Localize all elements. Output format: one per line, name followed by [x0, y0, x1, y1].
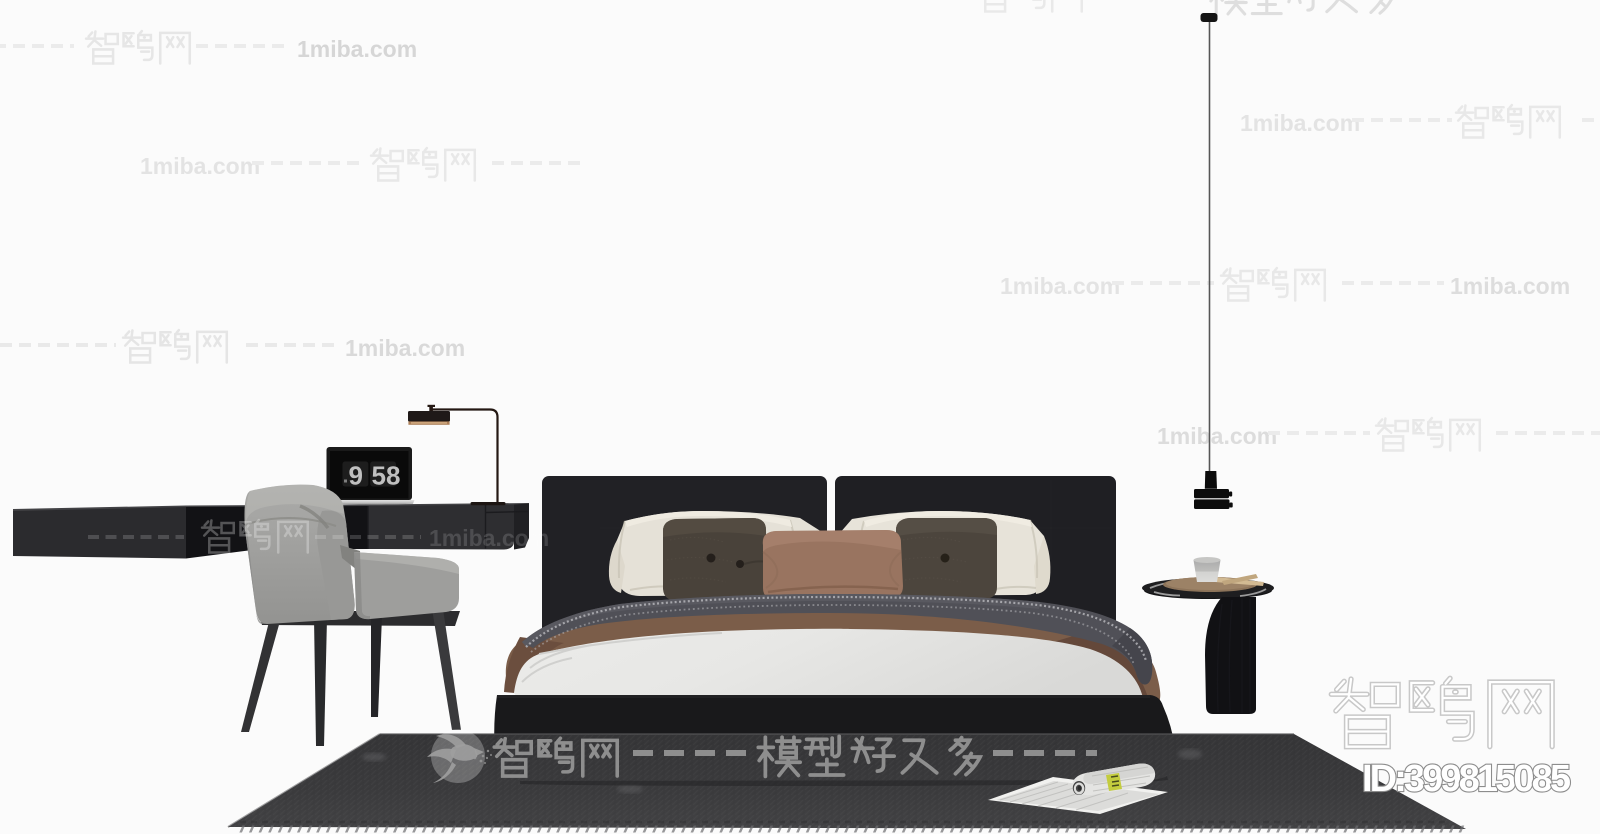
svg-text:1miba.com: 1miba.com	[1157, 423, 1277, 449]
svg-text:9: 9	[349, 461, 363, 491]
svg-text:1miba.com: 1miba.com	[345, 335, 465, 361]
svg-text:1miba.com: 1miba.com	[1240, 110, 1360, 136]
svg-text:1miba.com: 1miba.com	[1450, 273, 1570, 299]
svg-text:58: 58	[372, 461, 401, 491]
svg-text:1miba.com: 1miba.com	[140, 153, 260, 179]
svg-text:ID:399815085: ID:399815085	[1362, 758, 1571, 800]
svg-text:1miba.com: 1miba.com	[297, 36, 417, 62]
svg-text:1miba.com: 1miba.com	[429, 525, 549, 551]
svg-text:1miba.com: 1miba.com	[1000, 273, 1120, 299]
